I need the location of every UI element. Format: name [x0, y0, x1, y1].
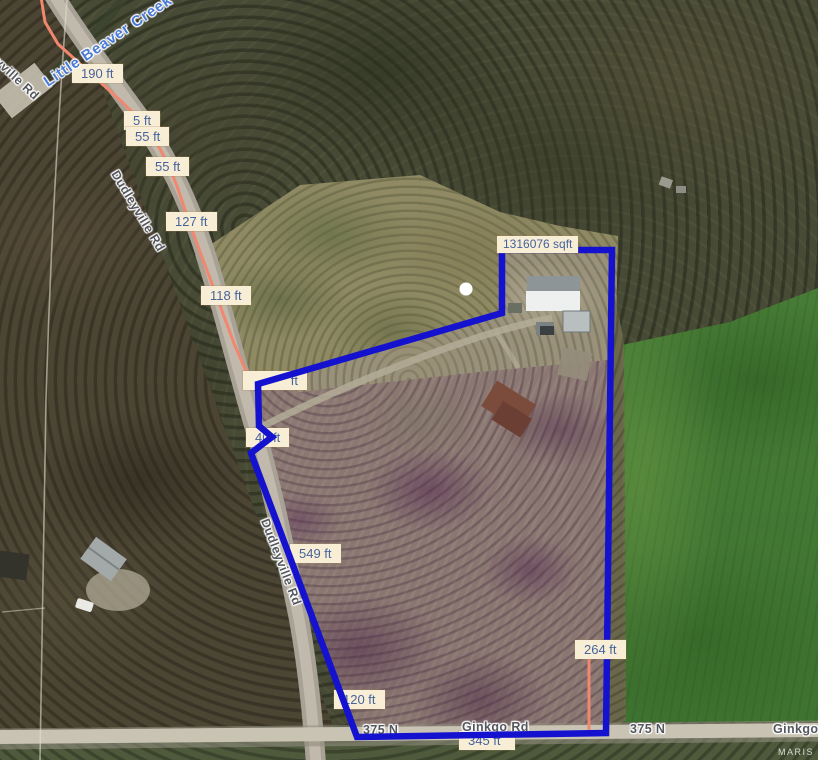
satellite-map[interactable]: 345 ft ft 40 ft 549 ft 120 ft 375 N Gink…: [0, 0, 818, 760]
area-label: 1316076 sqft: [497, 236, 578, 253]
road-label-375n-east: 375 N: [630, 722, 665, 736]
road-label-ginkgo-right: Ginkgo Rd: [773, 722, 818, 736]
measurement-label: 55 ft: [126, 127, 169, 146]
measurement-label: 55 ft: [146, 157, 189, 176]
measurement-label: 264 ft: [575, 640, 626, 659]
parcel-boundary-polygon[interactable]: [251, 250, 612, 737]
measurement-label: 127 ft: [166, 212, 217, 231]
maris-watermark: MARIS: [778, 747, 814, 757]
measurement-label: 118 ft: [201, 286, 251, 305]
parcel-layer: [0, 0, 818, 760]
vertex-marker-dot[interactable]: [460, 283, 473, 296]
